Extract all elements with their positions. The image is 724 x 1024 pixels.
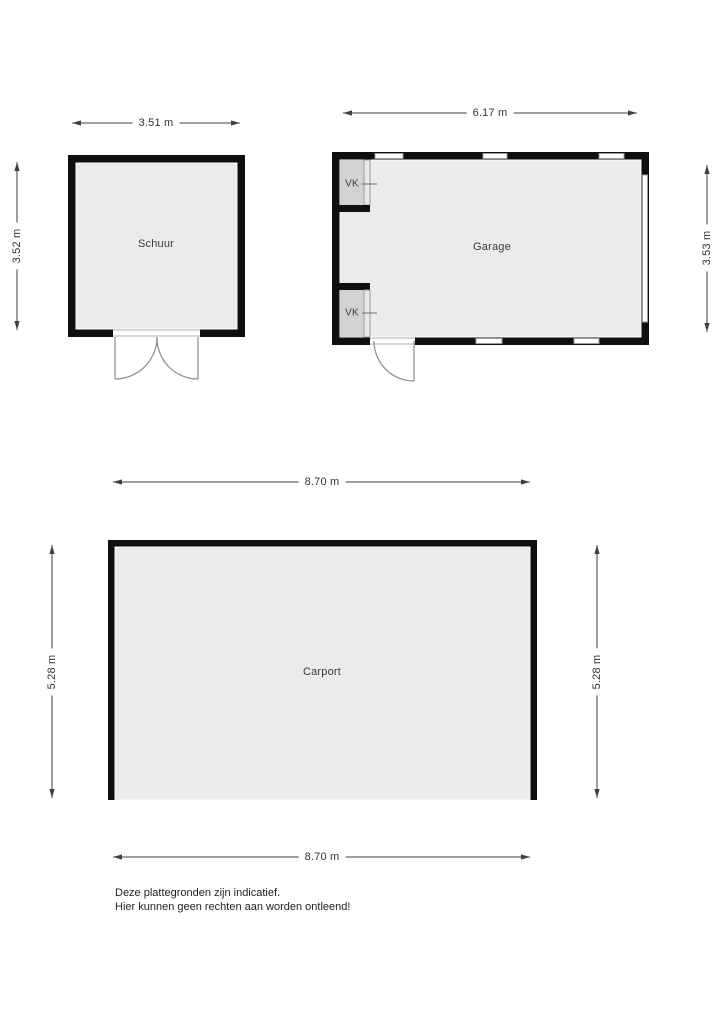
carport-left-wall [108,540,115,800]
schuur-door-left-swing-arc [115,337,157,379]
schuur-room-label: Schuur [138,238,174,250]
garage-window-top-2 [483,154,507,159]
garage-window-top-3 [599,154,624,159]
disclaimer-line1: Deze plattegronden zijn indicatief. [115,886,350,900]
carport-width-top-dimension-label: 8.70 m [299,476,346,488]
disclaimer: Deze plattegronden zijn indicatief. Hier… [115,886,350,914]
schuur-structure [68,155,245,379]
floorplan-page: 3.51 m 3.52 m 6.17 m 3.53 m 8.70 m 5.28 … [0,0,724,1024]
vk-top-partition-wall [364,160,370,205]
carport-room-label: Carport [303,666,341,678]
floorplan-drawing [0,0,724,1024]
vk-top-bottom-wall [332,205,370,212]
carport-width-bottom-dimension-label: 8.70 m [299,851,346,863]
carport-top-wall [108,540,537,547]
garage-width-dimension-label: 6.17 m [467,107,514,119]
vk-top-room-label: VK [345,179,359,190]
carport-height-right-dimension-label: 5.28 m [591,649,603,696]
disclaimer-line2: Hier kunnen geen rechten aan worden ontl… [115,900,350,914]
garage-room-label: Garage [473,241,511,253]
garage-window-right [643,175,648,322]
garage-window-top-1 [375,154,403,159]
schuur-door-right-swing-arc [157,337,198,379]
carport-height-left-dimension-label: 5.28 m [46,649,58,696]
garage-structure [332,152,649,381]
carport-right-wall [530,540,537,800]
garage-window-bottom-2 [574,339,599,344]
vk-bottom-room-label: VK [345,308,359,319]
vk-bottom-top-wall [332,283,370,290]
schuur-width-dimension-label: 3.51 m [133,117,180,129]
garage-height-dimension-label: 3.53 m [701,225,713,272]
garage-window-bottom-1 [476,339,502,344]
garage-door-swing-arc [374,341,414,381]
schuur-height-dimension-label: 3.52 m [11,223,23,270]
